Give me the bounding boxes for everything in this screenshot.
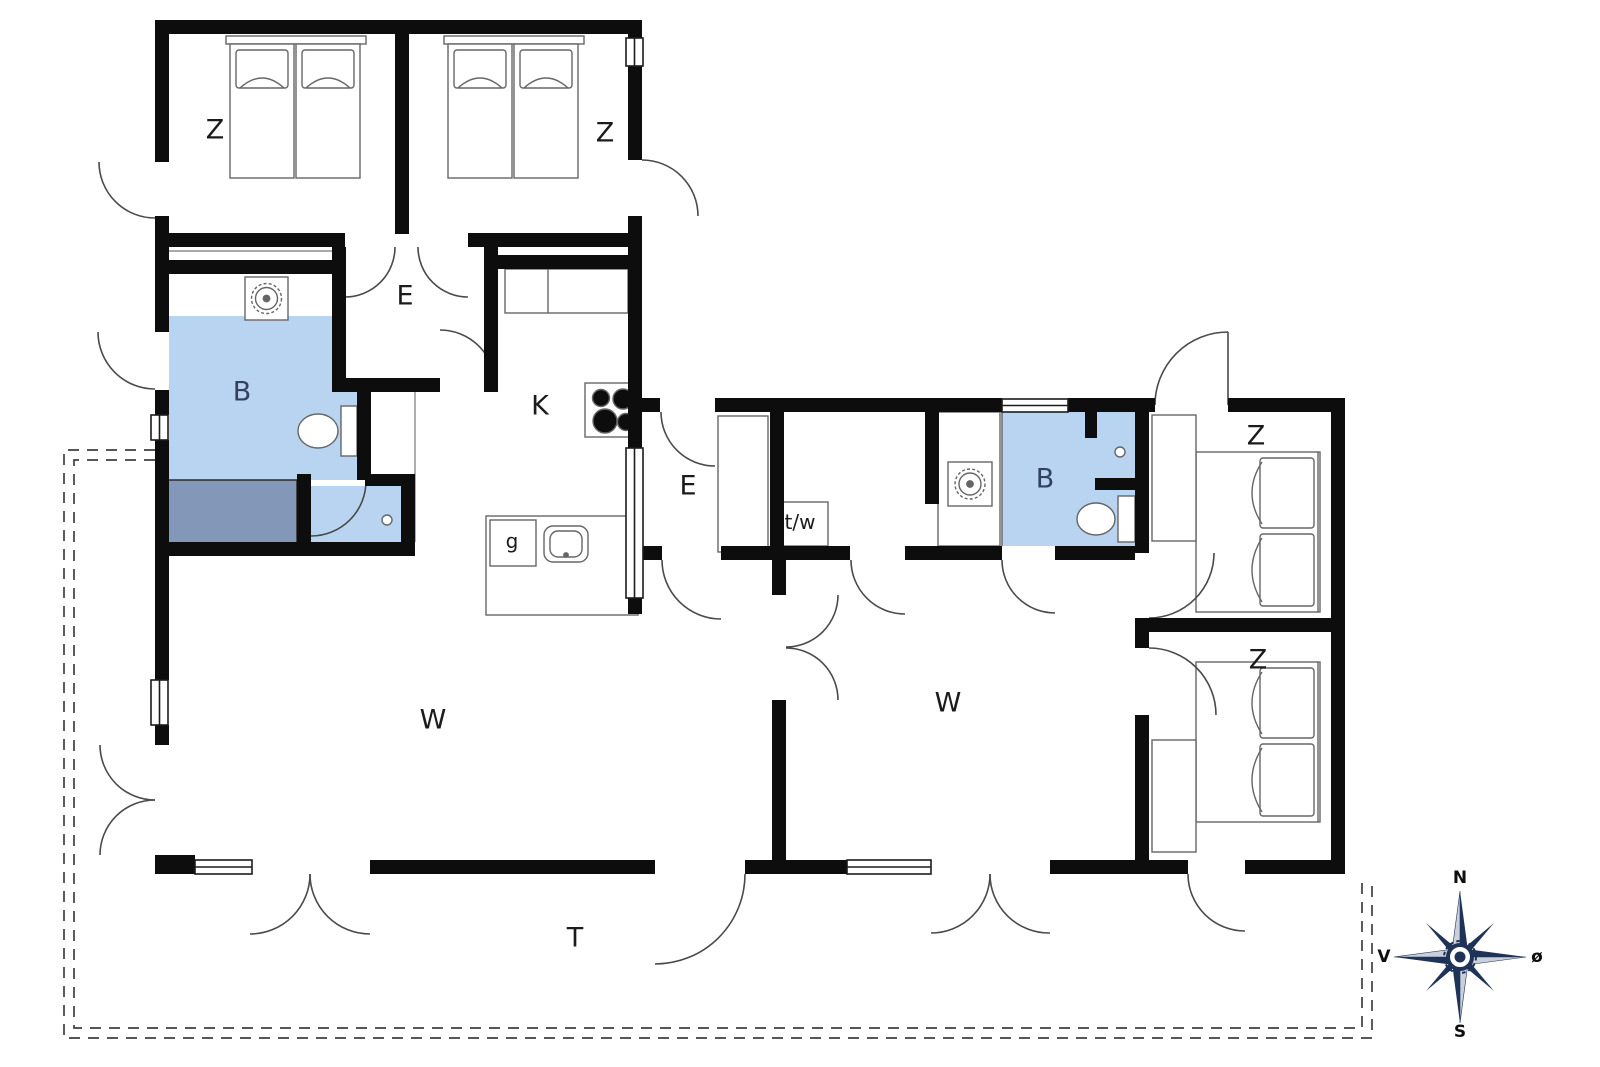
door-arc (1155, 332, 1228, 405)
door-arc (662, 560, 721, 619)
compass-east-label: ø (1531, 947, 1543, 967)
door-arc (345, 247, 395, 297)
pillow (1260, 668, 1314, 738)
floor-plan-page: Z Z E B K E t/w g B Z Z W W T N S V ø (0, 0, 1600, 1067)
room-label-hall-middle: E (679, 471, 696, 502)
room-label-living-east: W (935, 688, 962, 719)
room-label-terrace: T (567, 923, 584, 954)
washing-machine-east (948, 462, 992, 506)
compass-north-label: N (1453, 868, 1467, 888)
compass-rose-icon (1394, 891, 1526, 1023)
room-label-pantry: g (506, 529, 519, 553)
pillow (236, 50, 288, 88)
wardrobe-hall (718, 416, 768, 552)
door-arc (661, 412, 715, 466)
door-arc (655, 874, 745, 964)
pillow (1260, 744, 1314, 816)
room-label-toilet-wash: t/w (785, 510, 816, 534)
window (151, 415, 168, 440)
double-bed-ne (1196, 452, 1320, 612)
pillow (1260, 458, 1314, 528)
room-label-bedroom-se: Z (1249, 645, 1268, 676)
room-label-bathroom-east: B (1036, 464, 1055, 495)
pillow (520, 50, 572, 88)
wardrobe-se (1152, 740, 1196, 852)
door-arc (100, 745, 155, 800)
window-interior (626, 448, 643, 598)
room-label-bedroom-ne: Z (1247, 421, 1266, 452)
wardrobe-ne (1152, 415, 1196, 541)
window (151, 680, 168, 725)
door-arc (786, 595, 838, 647)
room-label-bedroom-nw: Z (206, 115, 225, 146)
room-label-entry-north: E (396, 281, 413, 312)
door-arc (250, 874, 310, 934)
door-arc (100, 800, 155, 855)
door-arc (990, 874, 1050, 933)
double-bed-nw (226, 36, 366, 178)
door-arc (1188, 874, 1245, 931)
door-arc (1002, 560, 1055, 613)
shower-head-west (382, 515, 392, 525)
kitchen-sink (544, 526, 588, 562)
shower-head-east (1115, 447, 1125, 457)
pillow (302, 50, 354, 88)
kitchen-counter (505, 269, 628, 313)
stove (585, 383, 635, 437)
window (626, 38, 643, 66)
double-bed-n (444, 36, 584, 178)
pillow (454, 50, 506, 88)
room-label-living-west: W (420, 705, 447, 736)
compass-south-label: S (1454, 1022, 1466, 1042)
washing-machine-west (245, 277, 288, 320)
door-arc (786, 648, 838, 700)
door-arc (931, 874, 990, 933)
window (1002, 399, 1068, 412)
door-arc (642, 160, 698, 216)
door-arc (98, 332, 155, 389)
compass-west-label: V (1377, 947, 1390, 967)
room-label-kitchen: K (531, 391, 549, 422)
pillow (1260, 534, 1314, 606)
door-arc (418, 247, 468, 297)
room-label-bedroom-n: Z (596, 118, 615, 149)
room-label-bathroom-west: B (233, 377, 252, 408)
window (847, 860, 931, 874)
door-arc (851, 560, 905, 614)
window (195, 860, 252, 874)
bathtub (167, 480, 297, 544)
double-bed-se (1196, 662, 1320, 822)
door-arc (99, 162, 155, 218)
door-arc (310, 874, 370, 934)
